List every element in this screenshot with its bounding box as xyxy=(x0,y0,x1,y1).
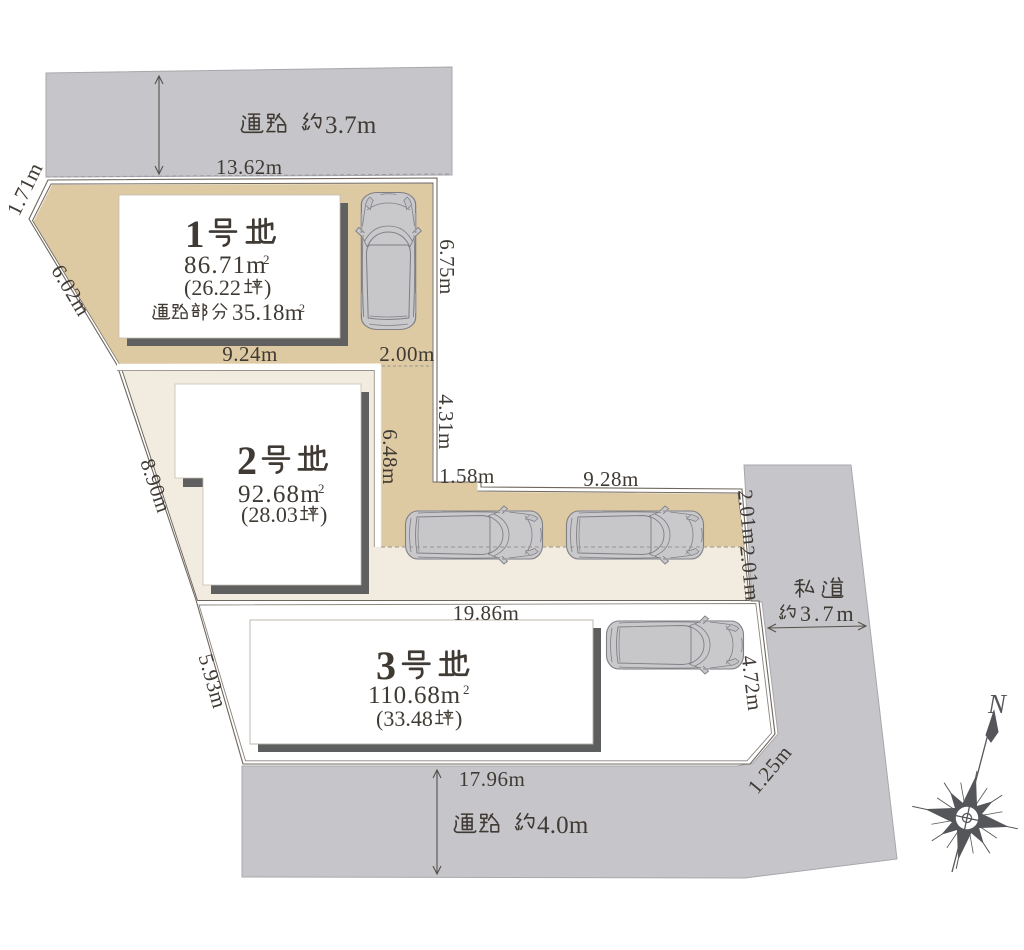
svg-text:3.7m: 3.7m xyxy=(325,112,377,139)
svg-text:2: 2 xyxy=(263,252,270,267)
svg-text:(26.22: (26.22 xyxy=(184,275,241,300)
svg-text:4.31m: 4.31m xyxy=(434,394,458,450)
svg-text:9.24m: 9.24m xyxy=(222,342,278,366)
svg-text:19.86m: 19.86m xyxy=(453,601,520,625)
svg-text:2: 2 xyxy=(463,682,470,697)
svg-text:35.18m: 35.18m xyxy=(232,300,303,325)
svg-text:): ) xyxy=(320,502,327,527)
svg-text:2: 2 xyxy=(299,301,305,315)
svg-text:): ) xyxy=(455,706,462,731)
svg-text:1.58m: 1.58m xyxy=(439,464,495,488)
svg-text:2: 2 xyxy=(237,438,257,483)
svg-text:2: 2 xyxy=(318,481,325,496)
svg-text:): ) xyxy=(264,275,271,300)
svg-text:17.96m: 17.96m xyxy=(459,767,526,791)
svg-text:6.48m: 6.48m xyxy=(378,429,402,485)
svg-text:13.62m: 13.62m xyxy=(216,155,283,179)
svg-text:N: N xyxy=(987,689,1008,719)
svg-text:110.68m: 110.68m xyxy=(368,682,461,709)
svg-text:6.75m: 6.75m xyxy=(435,239,459,295)
svg-text:9.28m: 9.28m xyxy=(583,467,639,491)
svg-text:(33.48: (33.48 xyxy=(376,706,433,731)
svg-text:3.7m: 3.7m xyxy=(800,601,857,626)
svg-text:(28.03: (28.03 xyxy=(241,502,298,527)
svg-text:4.0m: 4.0m xyxy=(537,812,589,839)
svg-text:2.00m: 2.00m xyxy=(379,342,435,366)
svg-text:1: 1 xyxy=(185,213,205,256)
